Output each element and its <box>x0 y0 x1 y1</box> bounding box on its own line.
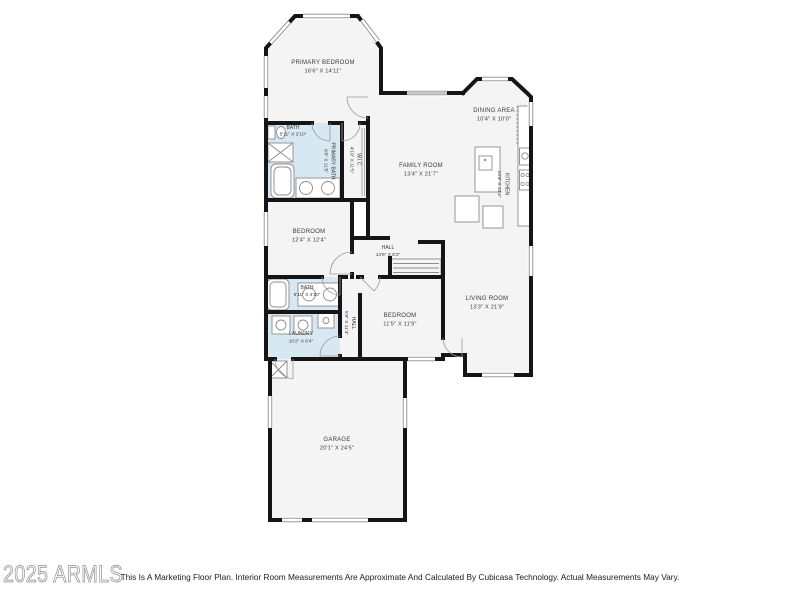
garage-utility-box <box>270 361 287 378</box>
room-dims-kitchen: 10'4" X 13'4" <box>496 170 502 197</box>
room-label-bedroom-bottom: BEDROOM <box>384 313 417 319</box>
room-dims-living-room: 13'3" X 21'9" <box>470 305 504 311</box>
footer: 2025 ARMLS This Is A Marketing Floor Pla… <box>3 560 679 587</box>
room-label-bath-top: BATH <box>287 125 300 131</box>
room-label-hall: HALL <box>382 245 395 251</box>
room-dims-primary-bath: 9'8" X 11'5" <box>323 149 329 173</box>
room-label-hall-small: HALL <box>350 317 356 330</box>
floor-plan-page: PRIMARY BEDROOM 16'6" X 14'11" BATH 5'11… <box>0 0 800 600</box>
room-dims-bath-top: 5'11" X 2'10" <box>280 132 307 138</box>
room-dims-garage: 20'1" X 24'5" <box>320 446 354 452</box>
room-label-dining-area: DINING AREA <box>473 108 514 114</box>
room-dims-bath-mid: 9'11" X 4'10" <box>294 292 321 298</box>
room-label-wic: W.I.C. <box>356 153 362 167</box>
room-dims-primary-bedroom: 16'6" X 14'11" <box>304 69 341 75</box>
room-label-primary-bedroom: PRIMARY BEDROOM <box>291 60 355 66</box>
room-label-bath-mid: BATH <box>301 285 314 291</box>
room-label-primary-bath: PRIMARY BATH <box>330 143 336 180</box>
room-dims-laundry: 10'2" X 6'4" <box>289 339 314 345</box>
room-dims-hall: 14'6" X 6'2" <box>376 252 401 258</box>
room-dims-hall-small: 5'9" X 11'4" <box>343 311 349 335</box>
armls-watermark: 2025 ARMLS <box>3 560 123 587</box>
room-label-family-room: FAMILY ROOM <box>399 163 443 169</box>
room-label-bedroom-mid: BEDROOM <box>293 229 326 235</box>
room-dims-wic: 4'10" X 11'5" <box>349 147 355 174</box>
room-dims-family-room: 13'4" X 21'7" <box>404 172 438 178</box>
room-label-laundry: LAUNDRY <box>289 331 313 337</box>
room-dims-bedroom-mid: 12'4" X 12'4" <box>292 238 326 244</box>
room-label-garage: GARAGE <box>323 437 350 443</box>
room-dims-bedroom-bottom: 11'5" X 11'9" <box>383 322 416 328</box>
disclaimer-text: This Is A Marketing Floor Plan. Interior… <box>121 572 680 582</box>
room-label-kitchen: KITCHEN <box>504 173 510 195</box>
room-label-living-room: LIVING ROOM <box>466 296 509 302</box>
floor-plan-image: PRIMARY BEDROOM 16'6" X 14'11" BATH 5'11… <box>0 0 800 600</box>
room-dims-dining-area: 10'4" X 10'0" <box>477 117 511 123</box>
